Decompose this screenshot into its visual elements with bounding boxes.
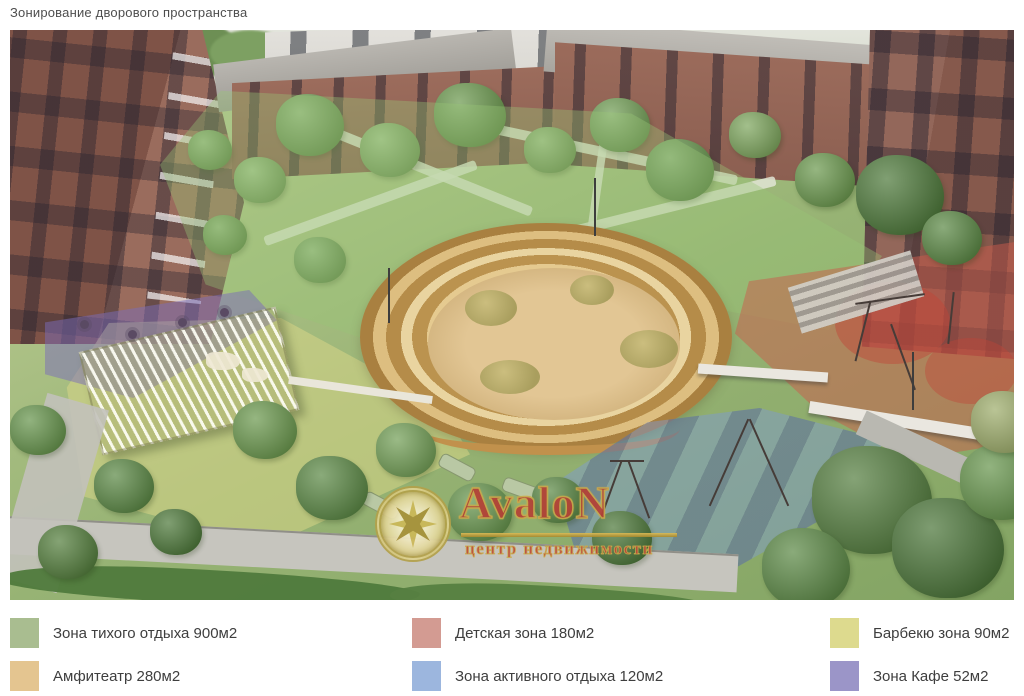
legend-label: Зона Кафе 52м2 [873, 668, 988, 685]
tree [376, 423, 436, 477]
legend-swatch-kids [412, 618, 441, 648]
legend-swatch-bbq [830, 618, 859, 648]
lamp-post [388, 268, 390, 323]
amphitheater-shrub [480, 360, 540, 394]
legend-item-quiet: Зона тихого отдыха 900м2 [10, 618, 237, 648]
legend-label: Зона активного отдыха 120м2 [455, 668, 663, 685]
legend-label: Барбекю зона 90м2 [873, 625, 1009, 642]
legend-swatch-active [412, 661, 441, 691]
legend-label: Амфитеатр 280м2 [53, 668, 180, 685]
tree [922, 211, 982, 265]
page-title: Зонирование дворового пространства [10, 5, 247, 20]
lamp-post [594, 178, 596, 236]
cafe-table [178, 318, 187, 327]
tree [233, 401, 297, 459]
legend-label: Зона тихого отдыха 900м2 [53, 625, 237, 642]
compass-rose-icon [375, 486, 451, 562]
legend-swatch-quiet [10, 618, 39, 648]
watermark-logo: AvaloN центр недвижимости [375, 478, 685, 590]
legend-item-bbq: Барбекю зона 90м2 [830, 618, 1009, 648]
courtyard-render: AvaloN центр недвижимости [10, 30, 1014, 600]
lamp-post [912, 352, 914, 410]
legend-item-kids: Детская зона 180м2 [412, 618, 594, 648]
legend-item-amphitheater: Амфитеатр 280м2 [10, 661, 180, 691]
legend-label: Детская зона 180м2 [455, 625, 594, 642]
stone-slab [242, 368, 268, 382]
legend-swatch-cafe [830, 661, 859, 691]
cafe-table [128, 330, 137, 339]
legend-item-cafe: Зона Кафе 52м2 [830, 661, 988, 691]
amphitheater-shrub [570, 275, 614, 305]
tree [94, 459, 154, 513]
tree [795, 153, 855, 207]
swing-crossbar [610, 460, 644, 462]
legend-item-active: Зона активного отдыха 120м2 [412, 661, 663, 691]
cafe-table [220, 308, 229, 317]
tree [38, 525, 98, 579]
amphitheater-shrub [465, 290, 517, 326]
tree [10, 405, 66, 455]
amphitheater-shrub [620, 330, 678, 368]
tree [296, 456, 368, 521]
legend-swatch-amphitheater [10, 661, 39, 691]
tree [150, 509, 202, 556]
cafe-table [80, 320, 89, 329]
stone-slab [206, 352, 240, 370]
tree [729, 112, 781, 159]
brand-underline [461, 533, 677, 537]
brand-tagline: центр недвижимости [465, 539, 654, 559]
brand-name: AvaloN [459, 476, 610, 529]
